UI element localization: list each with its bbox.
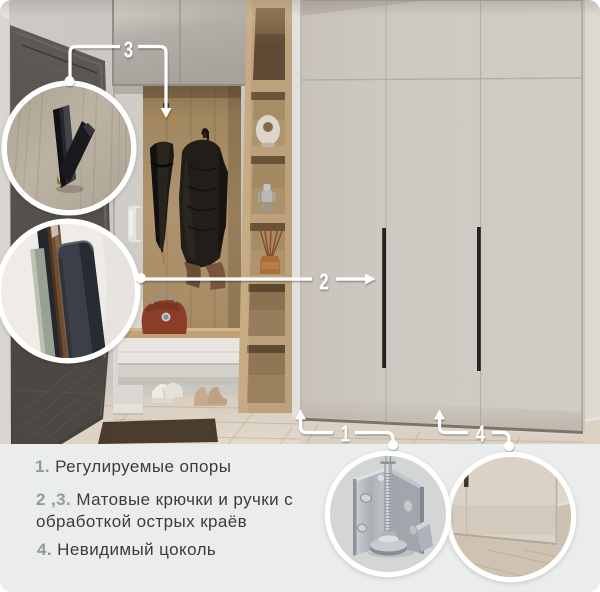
svg-text:2: 2 — [319, 270, 328, 295]
svg-text:4: 4 — [476, 422, 486, 447]
svg-text:3: 3 — [124, 38, 133, 63]
svg-text:1: 1 — [341, 422, 350, 447]
